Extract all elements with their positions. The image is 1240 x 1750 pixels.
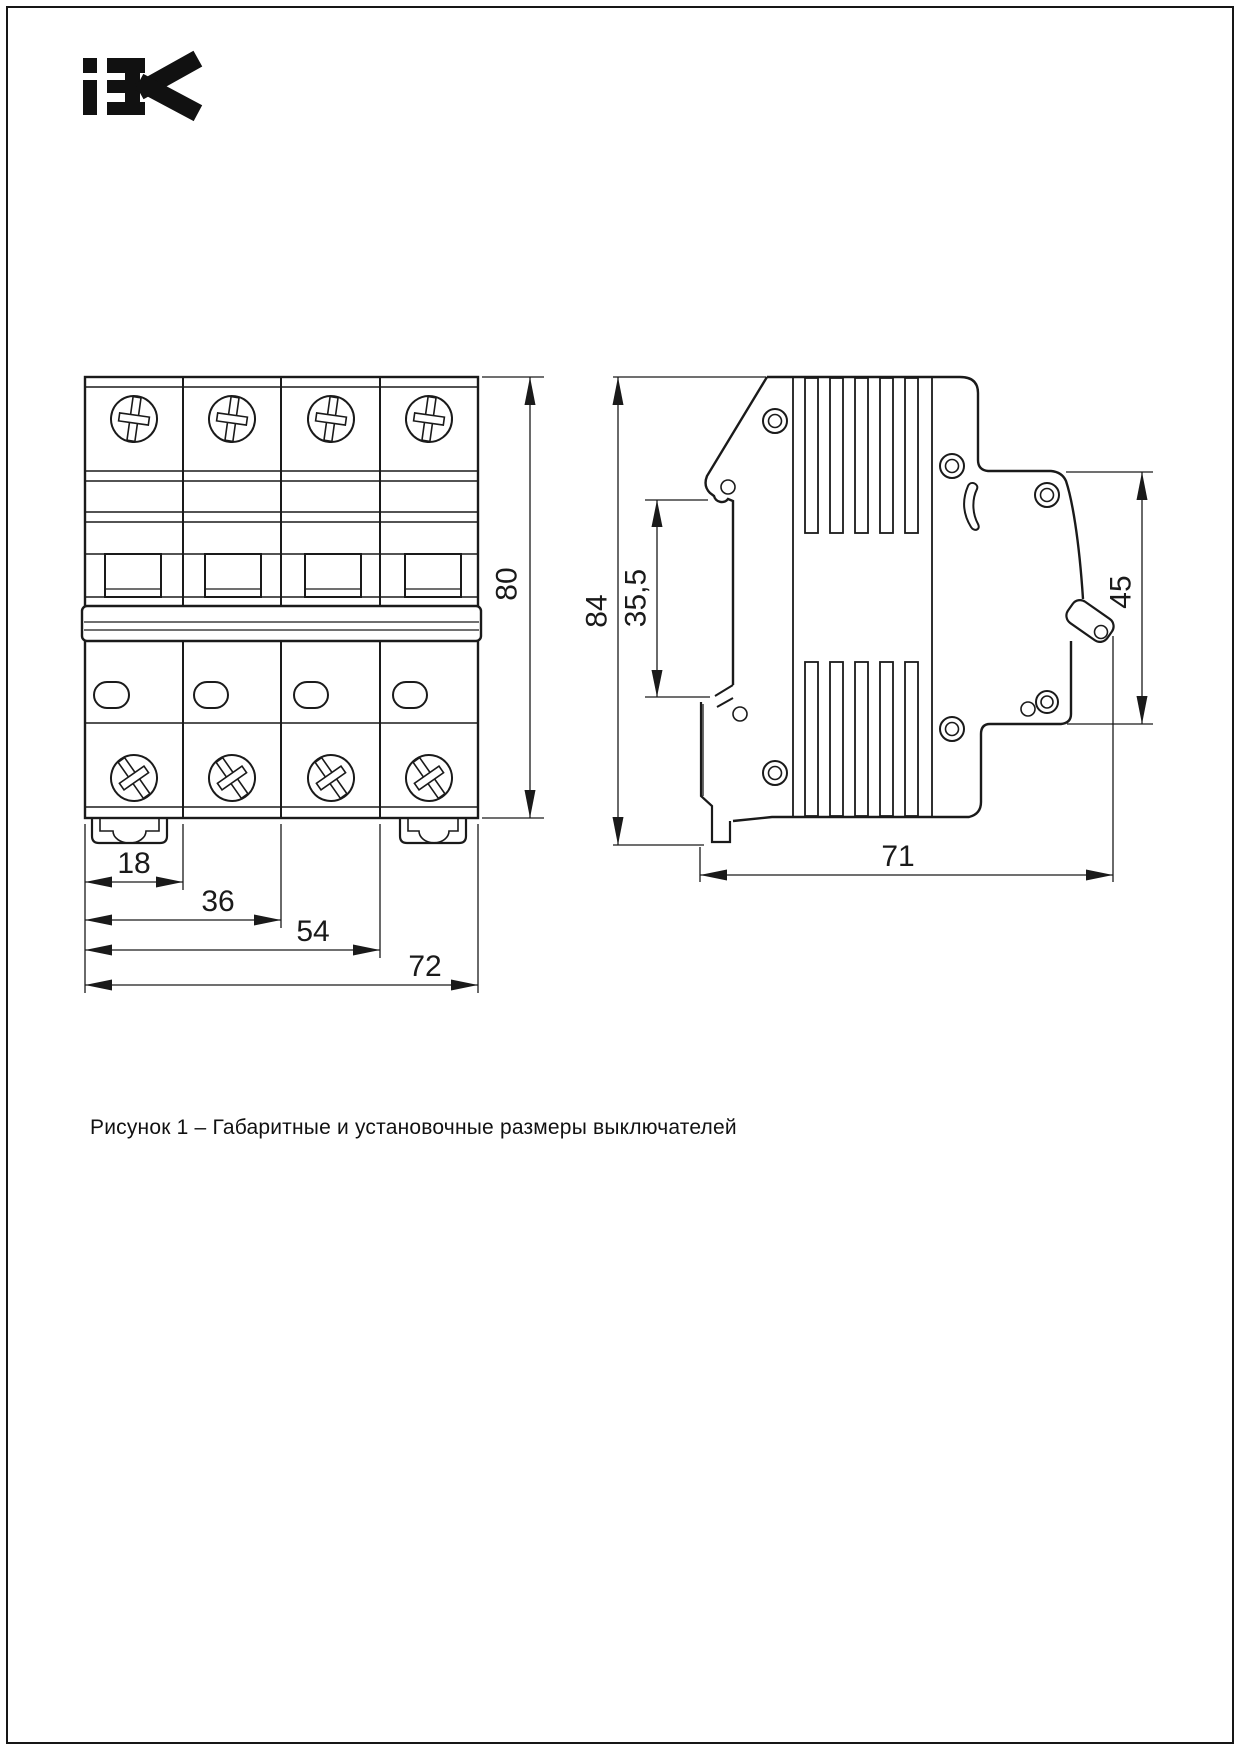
side-view-dimensions: 84 35,5 45 71	[581, 377, 1154, 882]
dimension-drawing: 80 18 36 54 72	[0, 0, 1240, 1750]
dim-width-72: 72	[408, 950, 441, 983]
dim-height-80: 80	[491, 567, 524, 600]
toggle-handles	[105, 554, 461, 597]
front-view-drawing	[82, 377, 481, 843]
curved-slot	[964, 483, 979, 530]
handle-tie-bar	[82, 606, 481, 641]
rivets	[721, 409, 1059, 785]
side-view-drawing	[701, 377, 1117, 842]
din-clips	[92, 818, 466, 843]
dim-front-45: 45	[1105, 575, 1138, 608]
dim-width-36: 36	[201, 885, 234, 918]
figure-caption: Рисунок 1 – Габаритные и установочные ра…	[90, 1116, 737, 1140]
marking-windows	[94, 682, 427, 708]
dim-width-54: 54	[296, 915, 329, 948]
dim-depth-71: 71	[881, 840, 914, 873]
rib-slats-bottom	[805, 662, 918, 816]
dim-height-84: 84	[581, 594, 614, 627]
dim-rail-35-5: 35,5	[620, 569, 653, 627]
front-view-dimensions: 80 18 36 54 72	[85, 377, 544, 993]
dim-module-18: 18	[117, 847, 150, 880]
rib-slats-top	[805, 378, 918, 533]
document-page: 80 18 36 54 72	[0, 0, 1240, 1750]
iek-logo	[83, 58, 190, 115]
